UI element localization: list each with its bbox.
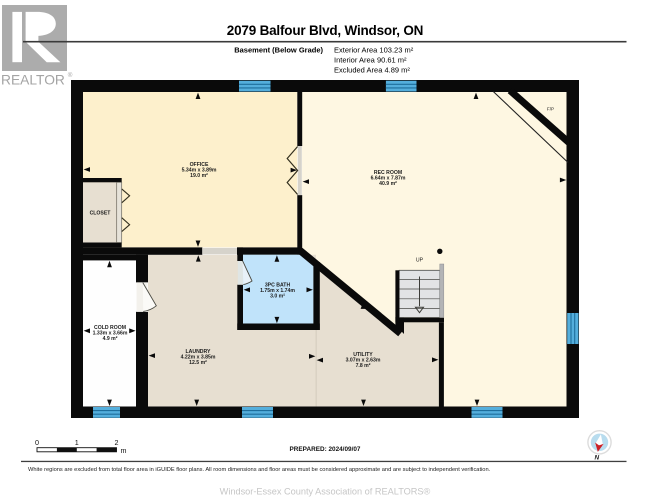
svg-text:N: N (594, 455, 599, 462)
svg-text:2: 2 (115, 438, 119, 447)
svg-text:Interior Area 90.61 m²: Interior Area 90.61 m² (334, 55, 407, 64)
svg-text:Windsor-Essex County Associati: Windsor-Essex County Association of REAL… (220, 486, 431, 496)
svg-text:40.9 m²: 40.9 m² (379, 181, 397, 187)
svg-text:1: 1 (75, 438, 79, 447)
svg-text:12.5 m²: 12.5 m² (189, 360, 207, 366)
svg-text:UP: UP (416, 258, 424, 264)
svg-text:3.0 m²: 3.0 m² (270, 293, 285, 299)
svg-text:0: 0 (35, 438, 39, 447)
svg-text:19.0 m²: 19.0 m² (190, 173, 208, 179)
svg-text:Excluded Area 4.89 m²: Excluded Area 4.89 m² (334, 66, 410, 75)
svg-text:2079 Balfour Blvd, Windsor, ON: 2079 Balfour Blvd, Windsor, ON (227, 23, 423, 38)
svg-text:CLOSET: CLOSET (90, 210, 112, 216)
svg-text:®: ® (68, 71, 73, 79)
svg-text:White regions are excluded fro: White regions are excluded from total fl… (28, 467, 491, 473)
svg-text:REALTOR: REALTOR (1, 73, 65, 88)
svg-text:4.9 m²: 4.9 m² (103, 336, 118, 342)
svg-text:m: m (121, 446, 127, 455)
svg-text:PREPARED: 2024/09/07: PREPARED: 2024/09/07 (290, 446, 361, 453)
svg-text:Exterior Area 103.23 m²: Exterior Area 103.23 m² (334, 46, 414, 55)
svg-text:Basement (Below Grade): Basement (Below Grade) (234, 46, 323, 55)
svg-text:F/P: F/P (547, 106, 554, 111)
svg-text:7.8 m²: 7.8 m² (356, 363, 371, 369)
